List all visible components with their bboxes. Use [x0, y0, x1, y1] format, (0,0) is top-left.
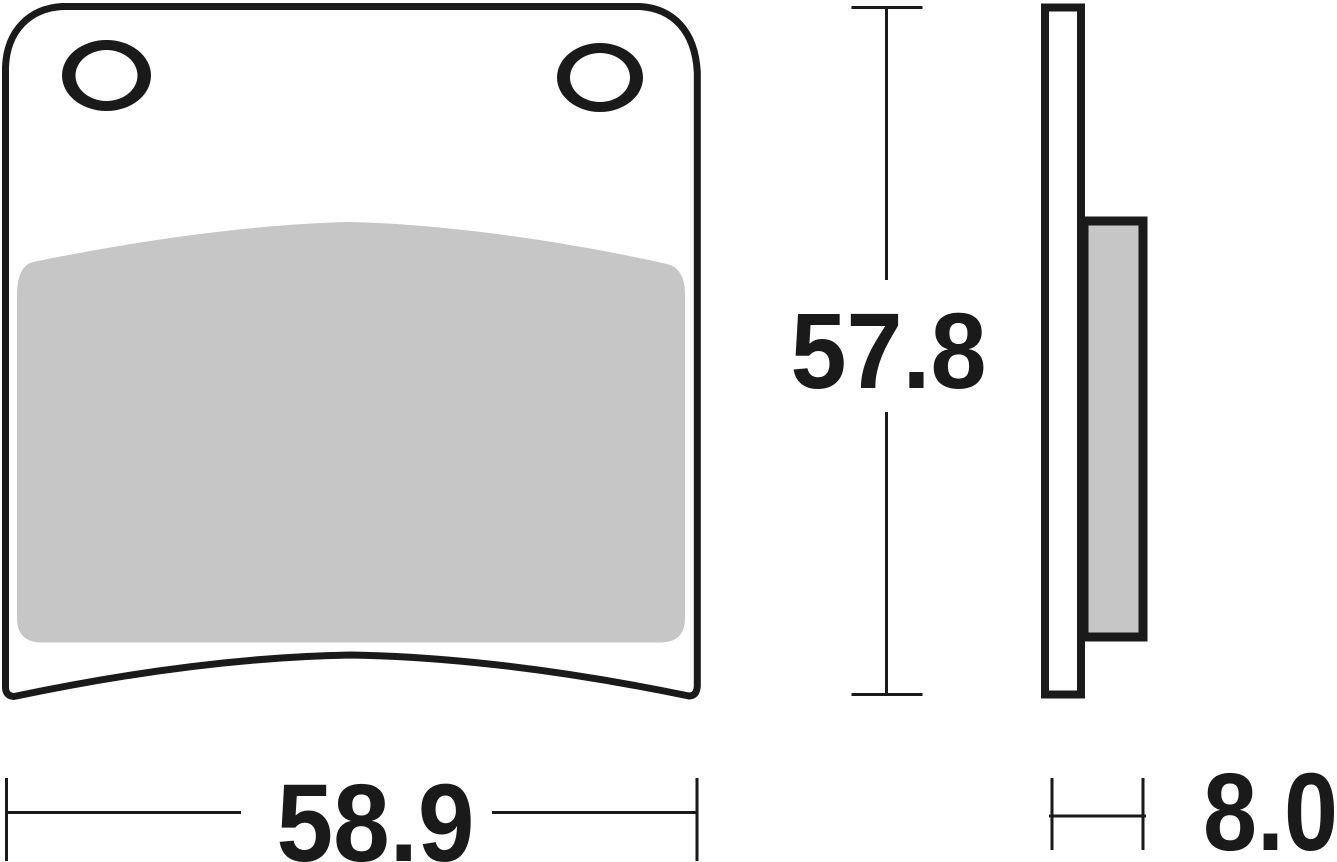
svg-text:8.0: 8.0 — [1203, 751, 1337, 862]
svg-text:57.8: 57.8 — [791, 290, 987, 411]
svg-text:58.9: 58.9 — [277, 762, 475, 862]
